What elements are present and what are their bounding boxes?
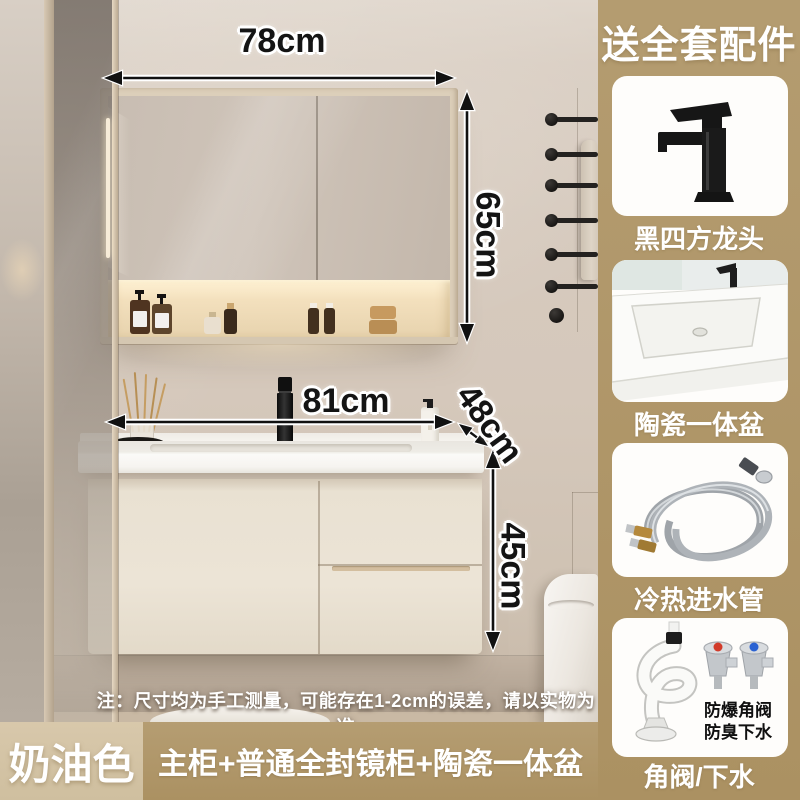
accessory-label-hoses: 冷热进水管 xyxy=(598,580,800,617)
door-drawer-divider xyxy=(318,481,320,654)
towel-bar xyxy=(556,183,598,188)
under-cabinet-glow xyxy=(108,344,450,370)
mirror-doors xyxy=(108,96,450,280)
towel-bar xyxy=(556,152,598,157)
accessory-card-valve-drain: 防爆角阀 防臭下水 xyxy=(612,618,788,757)
dropper-bottle xyxy=(324,308,335,334)
countertop xyxy=(78,441,484,473)
wall-hook xyxy=(549,308,564,323)
dimension-label-vanity-height: 45cm xyxy=(493,523,532,603)
drawer-handle-groove xyxy=(332,566,470,571)
ceramic-basin-icon xyxy=(612,260,788,402)
cosmetic-jar xyxy=(369,320,397,334)
sidebar-title: 送全套配件 xyxy=(598,14,800,69)
wall-seam xyxy=(572,492,598,493)
vanity-cabinet xyxy=(88,479,482,654)
towel-bar xyxy=(556,284,598,289)
product-poster: 78cm 65cm 81cm 48cm 45cm 注：尺寸均为手工测量，可能存在… xyxy=(0,0,800,800)
soap-spout xyxy=(423,399,429,402)
mirror-cabinet xyxy=(100,88,458,344)
accessory-card-basin xyxy=(612,260,788,402)
towel-bar xyxy=(556,252,598,257)
water-inlet-hoses-icon xyxy=(612,443,788,577)
color-swatch-label: 奶油色 xyxy=(0,722,143,800)
shower-enclosure xyxy=(0,0,118,722)
glass-door-handle xyxy=(106,118,110,258)
dimension-label-mirror-width: 78cm xyxy=(212,22,352,61)
bathroom-scene: 78cm 65cm 81cm 48cm 45cm 注：尺寸均为手工测量，可能存在… xyxy=(0,0,598,722)
configuration-text: 主柜+普通全封镜柜+陶瓷一体盆 xyxy=(158,739,583,783)
towel-bar xyxy=(556,117,598,122)
glass-frame xyxy=(112,0,118,722)
soap-label xyxy=(428,420,432,430)
accessory-card-hoses xyxy=(612,443,788,577)
dropper-bottle xyxy=(224,309,237,334)
towel-bar xyxy=(556,218,598,223)
basin-recess xyxy=(150,444,412,452)
glass-pane xyxy=(54,0,112,722)
valve-drain-badge: 防爆角阀 防臭下水 xyxy=(690,700,786,744)
wall-seam xyxy=(577,88,578,332)
accessory-card-faucet xyxy=(612,76,788,216)
cosmetic-jar xyxy=(370,306,396,319)
shower-light-glow xyxy=(0,238,44,302)
configuration-bar: 主柜+普通全封镜柜+陶瓷一体盆 xyxy=(143,722,598,800)
toiletry-bottle xyxy=(130,300,150,334)
measurement-note: 注：尺寸均为手工测量，可能存在1-2cm的误差，请以实物为准 xyxy=(94,687,598,722)
shelf-lip xyxy=(100,337,458,344)
badge-line-1: 防爆角阀 xyxy=(690,700,786,722)
black-square-faucet-icon xyxy=(612,76,788,216)
toiletry-bottle xyxy=(152,304,172,334)
dropper-bottle xyxy=(308,308,319,334)
accessory-label-faucet: 黑四方龙头 xyxy=(598,219,800,256)
perfume-bottle xyxy=(204,317,221,334)
shower-interior xyxy=(0,0,46,722)
accessories-sidebar: 送全套配件 黑四方龙头 xyxy=(598,0,800,800)
color-name: 奶油色 xyxy=(8,731,134,792)
angle-valve-hot xyxy=(704,642,737,689)
mirror-door-divider xyxy=(316,96,318,280)
accessory-label-basin: 陶瓷一体盆 xyxy=(598,405,800,442)
glass-frame xyxy=(44,0,54,722)
badge-line-2: 防臭下水 xyxy=(690,722,786,744)
dimension-label-mirror-height: 65cm xyxy=(468,192,507,272)
accessory-label-valve-drain: 角阀/下水 xyxy=(598,757,800,794)
towel xyxy=(581,140,598,280)
dimension-label-vanity-width: 81cm xyxy=(276,382,416,421)
angle-valve-cold xyxy=(740,642,773,689)
